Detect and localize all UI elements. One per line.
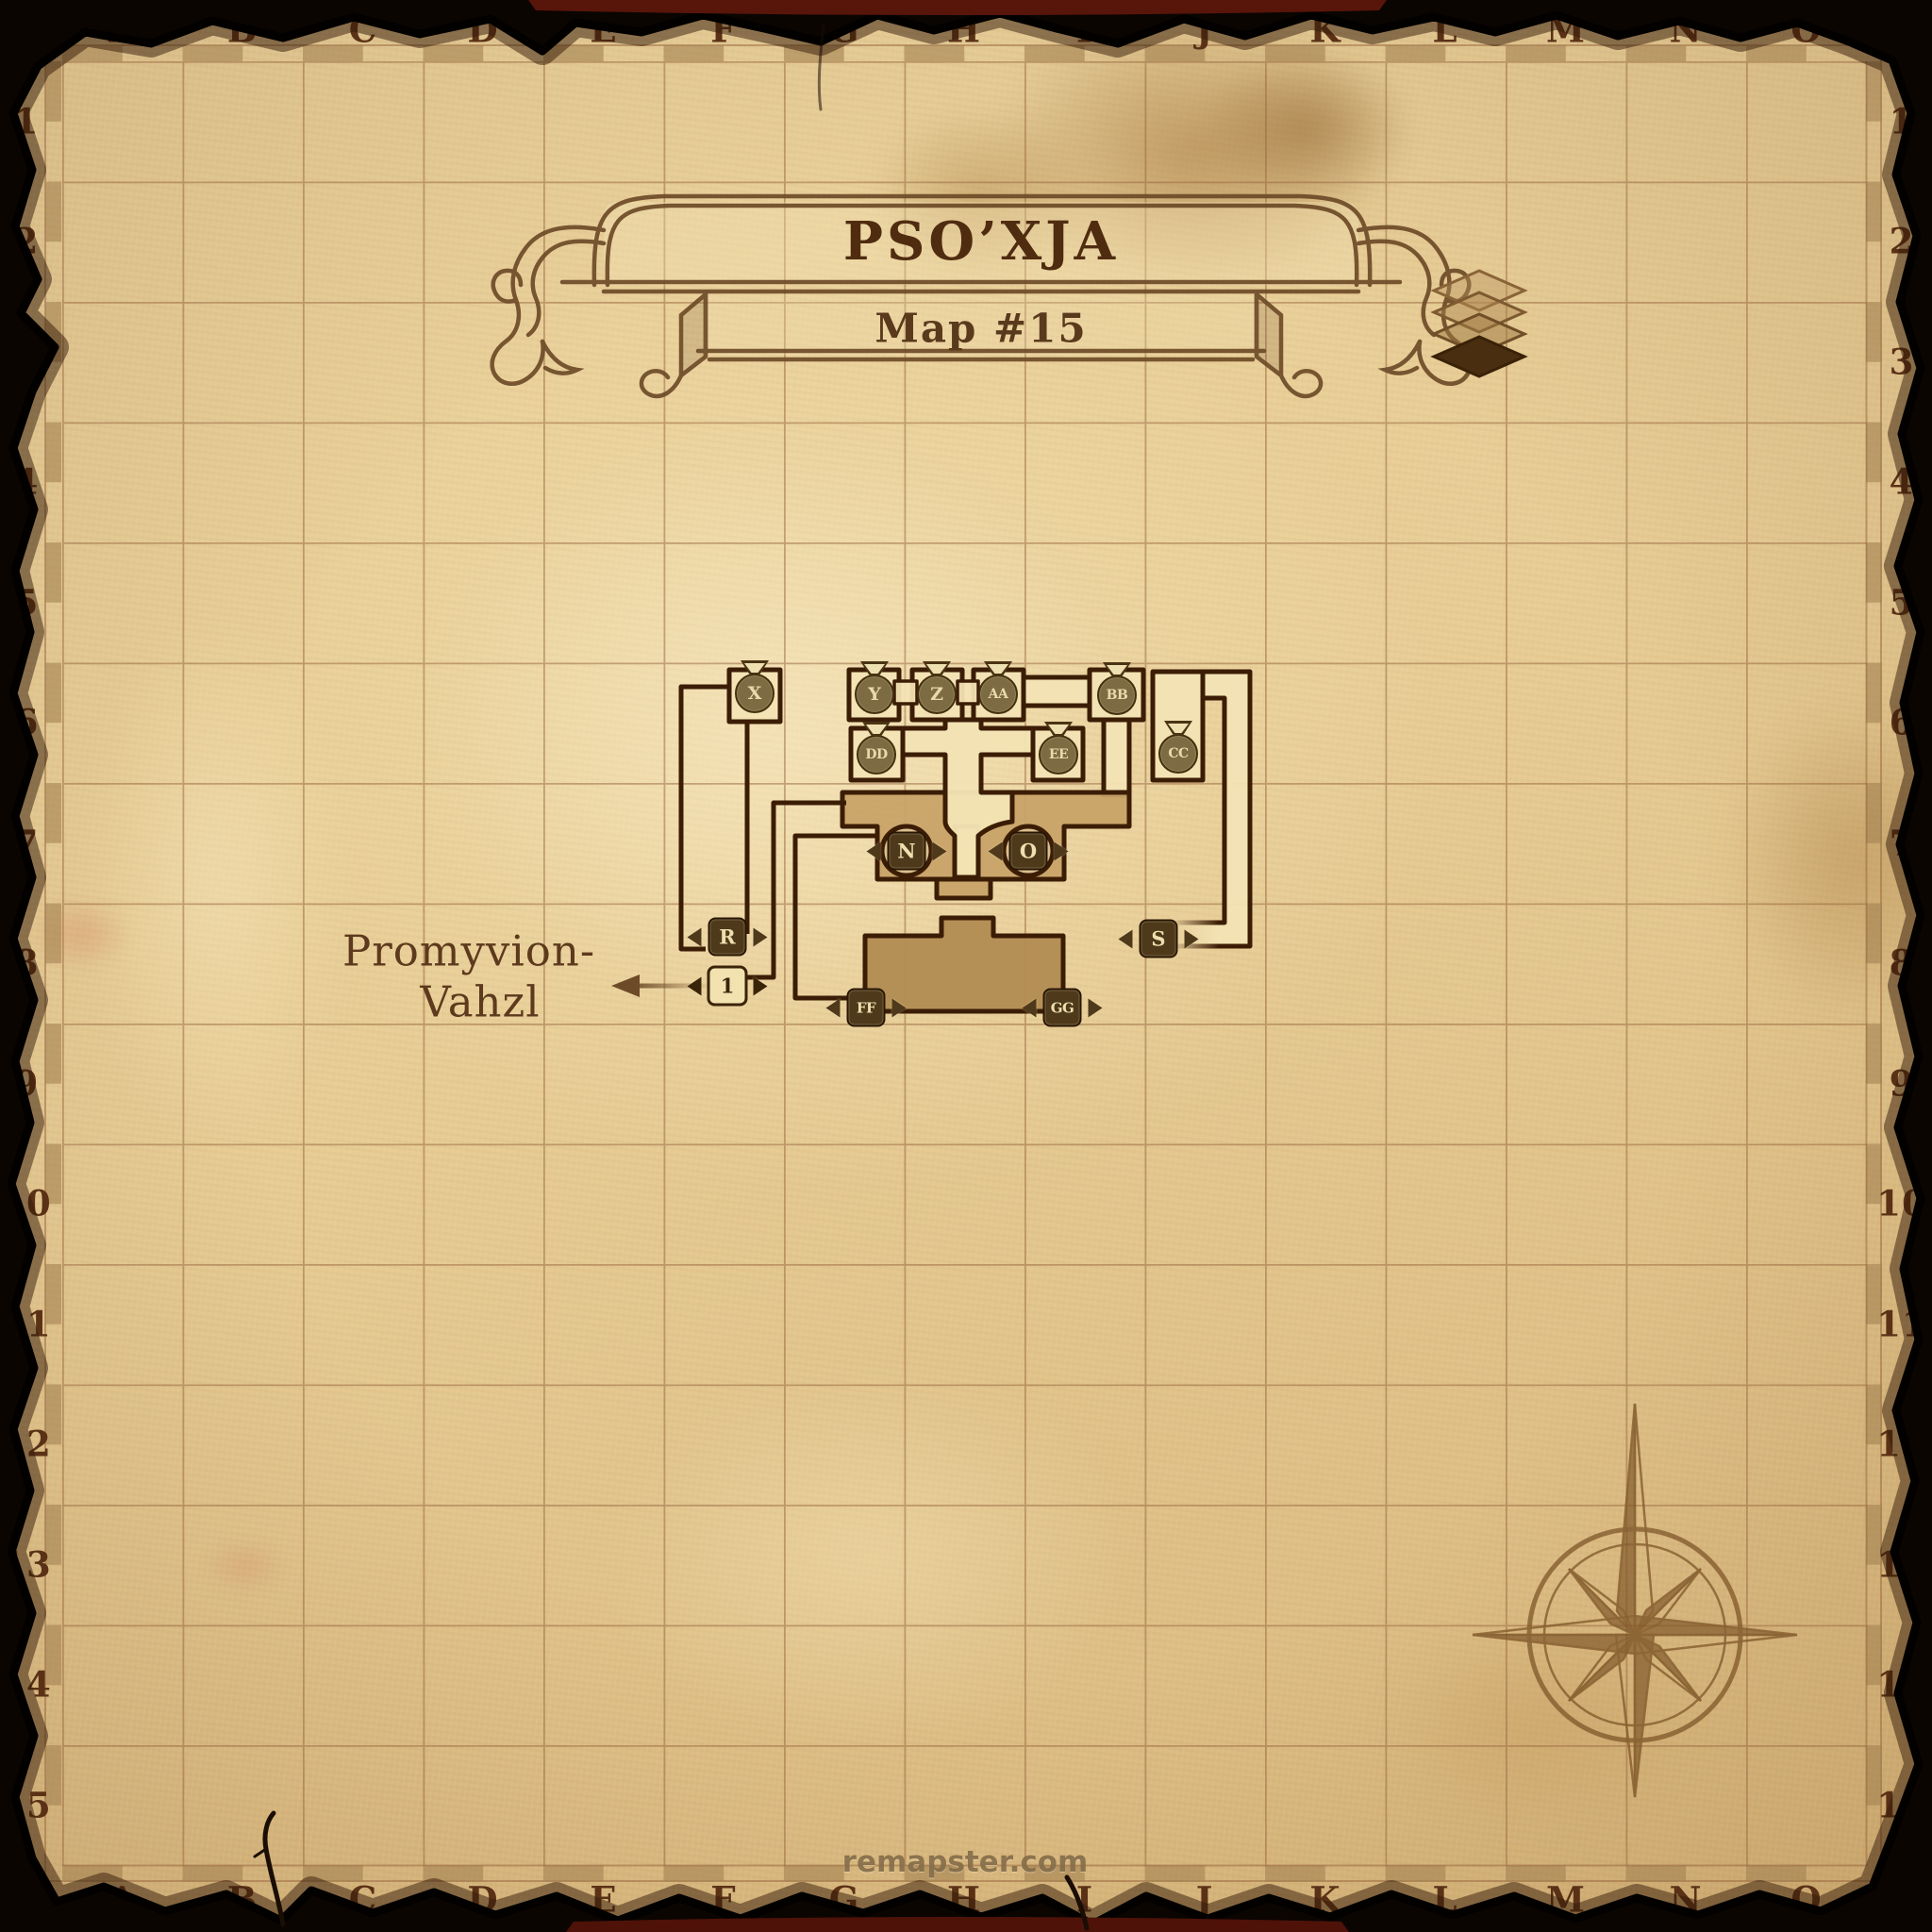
burnt-edge: [0, 0, 1932, 1932]
paper-cracks: [255, 25, 1087, 1928]
treasure-map: A B C D E F G H I J K L M N O A B C D E …: [0, 0, 1932, 1932]
